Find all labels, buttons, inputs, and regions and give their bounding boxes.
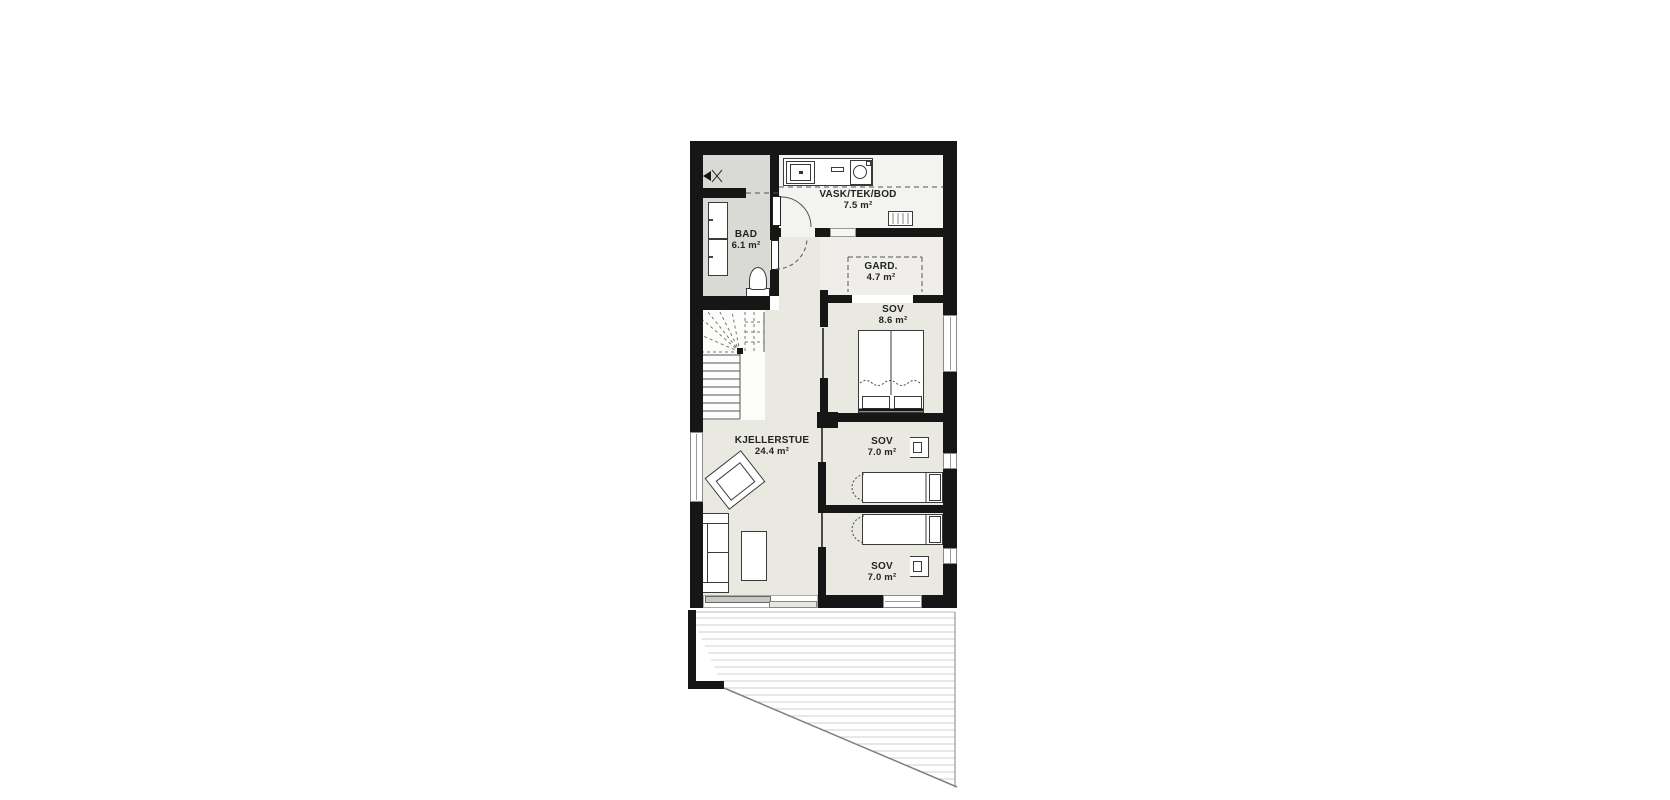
wall-bedrooms-divider (818, 505, 943, 513)
terrace-deck (690, 618, 955, 779)
door-leaf-laundry (772, 196, 781, 226)
room-area: 24.4 m² (712, 446, 832, 457)
room-name: SOV (844, 561, 920, 572)
wall-bathroom-right-lower (770, 270, 779, 296)
opening-laundry (781, 228, 815, 237)
room-area: 7.0 m² (844, 572, 920, 583)
pillow-icon (894, 396, 922, 409)
room-label-vask-tek-bod: VASK/TEK/BOD 7.5 m² (798, 189, 918, 211)
faucet-icon (709, 256, 713, 258)
wall-corridor-stub (815, 228, 828, 237)
window-bedroom-main-glass (950, 317, 951, 370)
wall-exterior-right-a (943, 141, 957, 315)
terrace-deck-border (690, 612, 957, 787)
floor-stairwell (703, 310, 765, 420)
room-area: 6.1 m² (708, 240, 784, 251)
room-name: KJELLERSTUE (712, 435, 832, 446)
toilet-bowl-icon (749, 267, 767, 290)
room-name: VASK/TEK/BOD (798, 189, 918, 200)
wall-exterior-top (690, 141, 957, 155)
sliding-glass-door-leaf-1 (705, 596, 771, 603)
floor-plan-canvas: VASK/TEK/BOD 7.5 m² BAD 6.1 m² GARD. 4.7… (0, 0, 1670, 800)
wall-exterior-bottom-b (922, 595, 957, 608)
room-name: GARD. (843, 261, 919, 272)
room-label-sov-7-0-a: SOV 7.0 m² (844, 436, 920, 458)
wall-corridor-b (820, 378, 828, 413)
sink-icon (831, 167, 844, 172)
pillow-icon (929, 474, 941, 501)
room-label-sov-7-0-b: SOV 7.0 m² (844, 561, 920, 583)
sliding-glass-door-leaf-2 (769, 601, 817, 608)
sofa-cushion-icon (707, 552, 729, 583)
room-name: SOV (855, 304, 931, 315)
room-name: BAD (708, 229, 784, 240)
window-bedroom-b-glass (950, 549, 951, 563)
wall-wardrobe-bottom-a (828, 295, 852, 303)
wall-corridor-c (818, 462, 826, 505)
wall-corridor-d (818, 547, 826, 595)
window-bottom-glass (885, 601, 920, 602)
coffee-table-icon (741, 531, 767, 581)
wall-exterior-bottom-a (818, 595, 883, 608)
sofa-armrest-icon (699, 582, 729, 593)
wall-entry-stub (702, 188, 746, 198)
threshold-laundry-wardrobe (830, 228, 856, 237)
sliding-door-bedroom-main (822, 328, 824, 378)
wall-bedroom-main-bottom (838, 413, 943, 422)
appliance-knob-icon (866, 161, 871, 166)
wall-exterior-left-upper (690, 141, 703, 432)
window-left-glass (696, 434, 697, 500)
room-label-bad: BAD 6.1 m² (708, 229, 784, 251)
wall-wardrobe-bottom-b (913, 295, 943, 303)
wall-exterior-right-b (943, 372, 957, 453)
door-bedroom-b (821, 513, 823, 547)
pillow-icon (929, 516, 941, 543)
window-bedroom-a-glass (950, 454, 951, 468)
appliance-circle-icon (853, 165, 867, 179)
room-label-kjellerstue: KJELLERSTUE 24.4 m² (712, 435, 832, 457)
wall-corner-block (817, 412, 838, 428)
room-name: SOV (844, 436, 920, 447)
room-area: 7.5 m² (798, 200, 918, 211)
wall-exterior-left-lower (690, 502, 703, 608)
retaining-wall (688, 610, 724, 689)
wall-bathroom-bottom (690, 296, 770, 310)
opening-wardrobe (820, 237, 828, 290)
room-label-gard: GARD. 4.7 m² (843, 261, 919, 283)
room-area: 4.7 m² (843, 272, 919, 283)
wall-corridor-a (820, 290, 828, 327)
floor-corridor (779, 237, 820, 310)
wall-exterior-right-c (943, 468, 957, 548)
room-area: 7.0 m² (844, 447, 920, 458)
washing-machine-dot-icon (799, 171, 803, 174)
room-area: 8.6 m² (855, 315, 931, 326)
sofa-cushion-icon (707, 523, 729, 553)
faucet-icon (709, 219, 713, 221)
room-label-sov-8-6: SOV 8.6 m² (855, 304, 931, 326)
wall-laundry-bottom-b (856, 228, 943, 237)
tech-cabinet-icon (888, 211, 913, 226)
pillow-icon (862, 396, 890, 409)
